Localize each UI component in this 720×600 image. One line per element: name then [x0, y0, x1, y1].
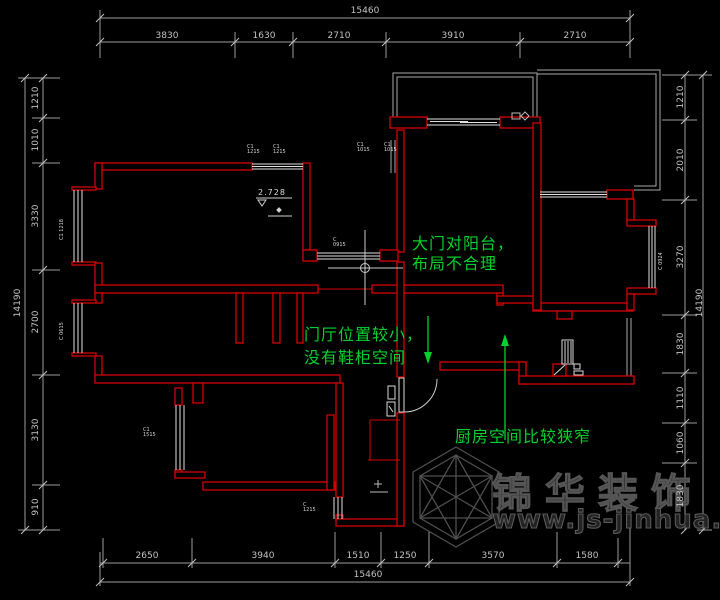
entry-door-arc: [404, 379, 437, 412]
watermark-cube-logo: [413, 447, 499, 547]
dim-right-7: 1830: [676, 485, 686, 508]
entry-door-leaf: [399, 378, 404, 412]
annotation-arrows: [424, 316, 509, 440]
dim-right-6: 1060: [676, 432, 686, 455]
dim-top-2: 1630: [253, 31, 276, 41]
note-kitchen: 厨房空间比较狭窄: [455, 423, 591, 447]
dim-left-total: 14190: [13, 289, 23, 318]
dim-right-total: 14190: [695, 289, 705, 318]
note-foyer-line1: 门厅位置较小，: [304, 321, 423, 345]
dim-left-4: 2700: [31, 311, 41, 334]
dim-bottom-total: 15460: [354, 570, 383, 580]
dim-bottom-1: 2650: [136, 551, 159, 561]
dim-top-1: 3830: [156, 31, 179, 41]
dim-left-5: 3130: [31, 419, 41, 442]
window-tag: C1 1218: [60, 219, 65, 240]
floor-drain-icon: [370, 480, 388, 492]
intercom-icon: [388, 386, 395, 399]
window-tag: C1 1215: [273, 145, 289, 155]
dim-left-2: 1010: [31, 129, 41, 152]
level-mark-value: 2.728: [258, 188, 286, 197]
window-tag: C1 1015: [384, 143, 400, 153]
dim-top-total: 15460: [351, 6, 380, 16]
note-foyer-line2: 没有鞋柜空间: [304, 344, 406, 368]
dim-bottom-4: 1250: [394, 551, 417, 561]
dim-right-2: 2010: [676, 149, 686, 172]
dim-right-3: 3270: [676, 246, 686, 269]
window-tag: C1 1515: [143, 428, 159, 438]
dim-bottom-3: 1510: [347, 551, 370, 561]
dim-right-1: 1210: [676, 86, 686, 109]
dim-top-3: 2710: [328, 31, 351, 41]
dim-left-1: 1210: [31, 87, 41, 110]
watermark-url: www.js-jinhua.com: [492, 505, 720, 535]
note-balcony-line2: 布局不合理: [412, 250, 497, 274]
dim-right-5: 1110: [676, 387, 686, 410]
window-tag: C1 1215: [247, 145, 263, 155]
dim-left-6: 910: [31, 498, 41, 515]
balcony-outlines: [391, 70, 660, 376]
window-tag: C1 1015: [357, 143, 373, 153]
window-tag: C 0615: [60, 322, 65, 340]
dim-bottom-6: 1580: [576, 551, 599, 561]
dim-bottom-2: 3940: [252, 551, 275, 561]
floorplan-canvas: 锦华装饰 www.js-jinhua.com 15460 3830 1630 2…: [0, 0, 720, 600]
dim-top-5: 2710: [564, 31, 587, 41]
dim-top-4: 3910: [442, 31, 465, 41]
window-tag: C 0924: [659, 252, 664, 270]
window-tag: C 1215: [303, 503, 319, 513]
dim-bottom-5: 3570: [482, 551, 505, 561]
level-mark-triangle: [258, 200, 266, 206]
dim-left-3: 3330: [31, 205, 41, 228]
dim-right-4: 1830: [676, 333, 686, 356]
window-tag: C 0915: [333, 238, 349, 248]
